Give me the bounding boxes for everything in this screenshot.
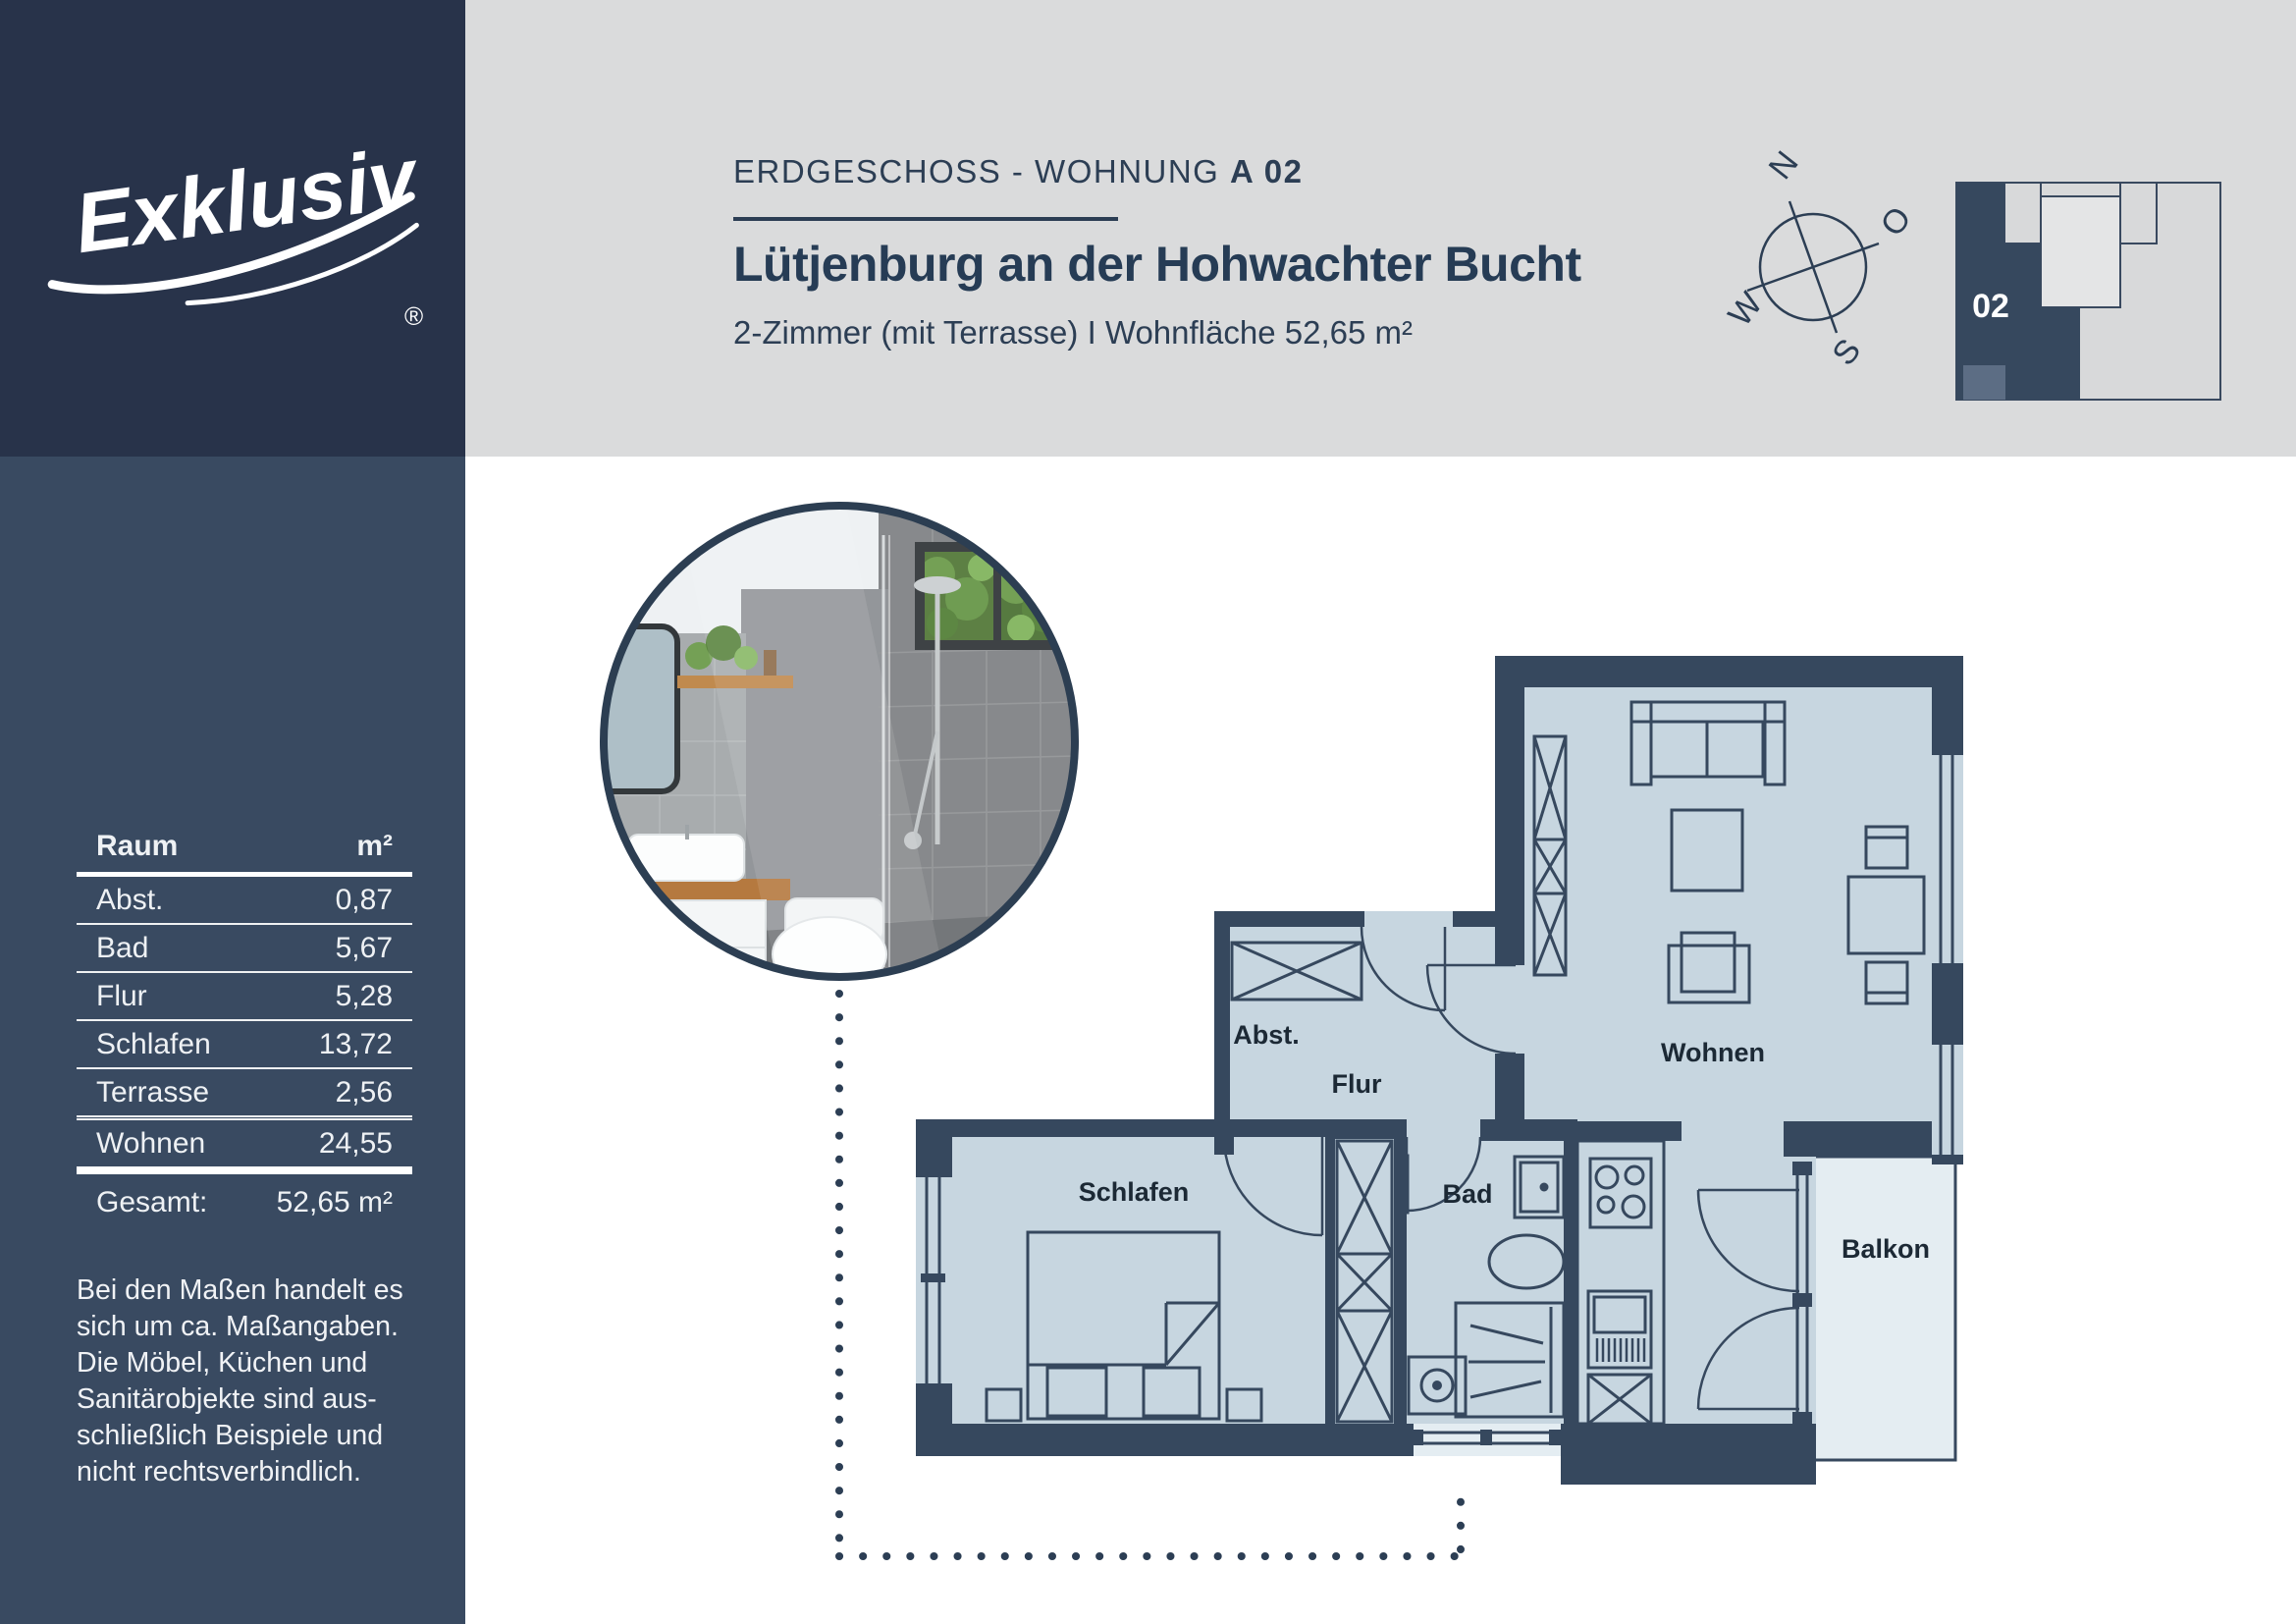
label-abst: Abst. bbox=[1233, 1020, 1300, 1050]
floor-plan: Abst. Flur Bad Schlafen Wohnen Balkon bbox=[913, 653, 1968, 1488]
wohnen-door-opening bbox=[1495, 965, 1524, 1054]
entrance-opening bbox=[1364, 911, 1453, 927]
label-flur: Flur bbox=[1332, 1069, 1382, 1099]
brochure-page: Exklusiv ® Raum m² Abst. 0,87 Bad 5,67 F… bbox=[0, 0, 2296, 1624]
label-schlafen: Schlafen bbox=[1079, 1177, 1190, 1207]
kitchen-lobby-floor bbox=[1577, 1141, 1816, 1424]
label-bad: Bad bbox=[1442, 1179, 1492, 1209]
balkon-floor bbox=[1816, 1157, 1955, 1460]
passage-floor bbox=[1682, 1121, 1784, 1141]
label-balkon: Balkon bbox=[1842, 1234, 1930, 1264]
label-wohnen: Wohnen bbox=[1661, 1038, 1765, 1067]
room-floors bbox=[952, 687, 1955, 1460]
bad-door-opening bbox=[1407, 1119, 1480, 1139]
